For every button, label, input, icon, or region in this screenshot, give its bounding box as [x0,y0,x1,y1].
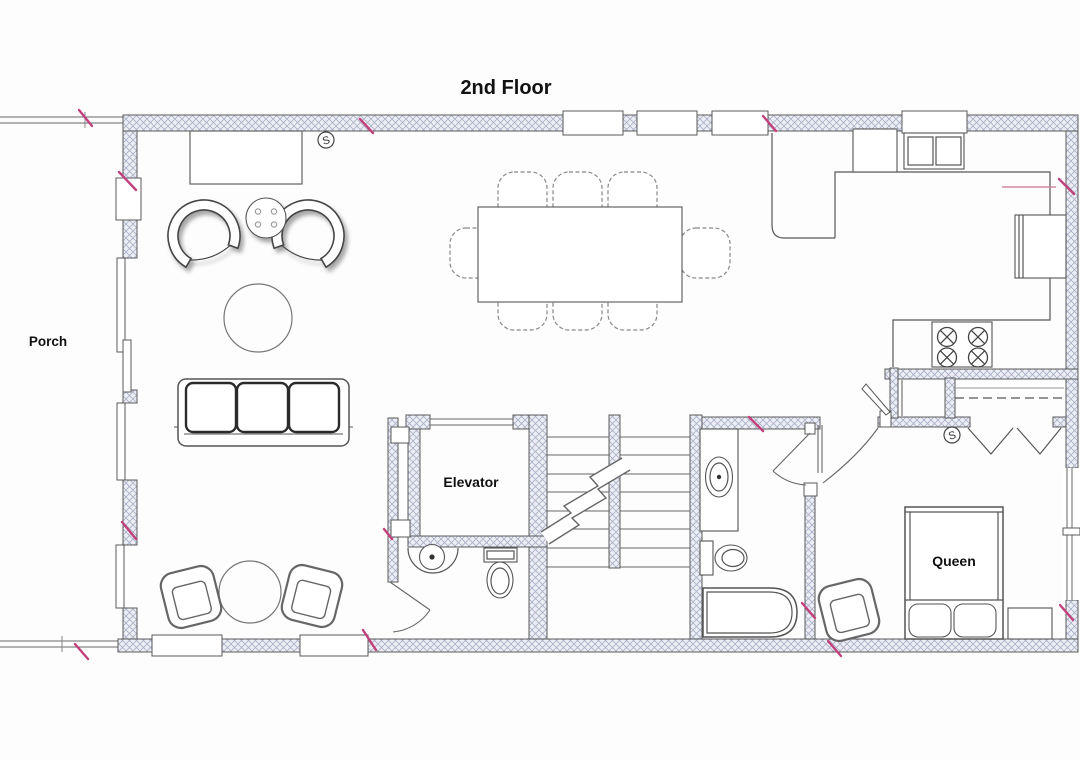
pillow-left [909,604,951,637]
sofa [174,379,353,446]
page-title: 2nd Floor [460,77,551,99]
room-label-porch: Porch [29,334,67,349]
bedroom-chair [816,576,882,643]
full-bathroom [700,429,810,637]
powder-sink-drain [429,554,434,559]
vestibule-door-leaf [862,384,890,415]
window-kitchen-sink [902,111,967,133]
console-cabinet [190,131,302,184]
window-right-bedroom [1063,468,1080,600]
nightstand [1008,608,1052,639]
smoke-detector-living: S [318,132,334,148]
porch-area: Porch [0,112,123,652]
kitchen [772,129,1066,367]
stair-treads-right [620,437,690,567]
half-bath-door [390,582,430,632]
vanity-sink-drain [717,475,721,479]
window-bottom-1 [152,635,222,656]
refrigerator [853,129,897,172]
dining-table [478,207,682,302]
window-top-1 [563,111,623,135]
dining-chair [680,228,730,278]
window-left-4 [116,545,124,608]
smoke-detector-bedroom: S [944,427,960,443]
bedroom-entry-door [818,380,902,483]
dining-area [450,172,730,330]
half-bathroom [390,545,517,633]
side-table [246,198,286,238]
queen-bed: Queen [905,507,1003,639]
room-label-elevator: Elevator [443,474,499,490]
wall-hall-top [702,417,820,429]
living-room: S [158,131,354,631]
bed-size-label: Queen [932,553,976,569]
kitchen-sink [904,133,964,169]
barrel-chair-left [158,190,246,270]
porch-railing-post [62,112,85,652]
window-top-2 [637,111,697,135]
dishwasher [1015,215,1066,278]
porch-door [116,178,141,220]
floor-plan-2nd-floor: Porch [0,0,1080,760]
corner-chair-left [158,563,224,630]
floor-plan-page: Porch [0,0,1080,760]
wall-kitchen-bottom [885,369,1078,379]
wall-stair-stringer [609,415,620,568]
bifold-door-left [968,428,1013,454]
ottoman [224,284,292,352]
toilet-tank-2 [700,541,713,575]
window-left-3 [117,403,125,480]
window-bottom-2 [300,635,368,656]
bifold-door-right [1017,428,1061,454]
corner-chair-right [279,562,345,629]
window-left-1 [117,258,125,352]
window-left-2 [123,340,131,392]
pillow-right [954,604,996,637]
toilet-bowl-2 [715,545,747,571]
wall-elevator-stairs [529,415,547,639]
bathroom-door [773,433,810,485]
porch-top-railing [0,117,123,123]
toilet-tank-1 [484,548,517,562]
corner-table [219,561,281,623]
elevator-door [430,419,513,425]
window-top-3 [712,111,768,135]
stove [932,322,992,367]
porch-bottom-railing [0,641,118,647]
